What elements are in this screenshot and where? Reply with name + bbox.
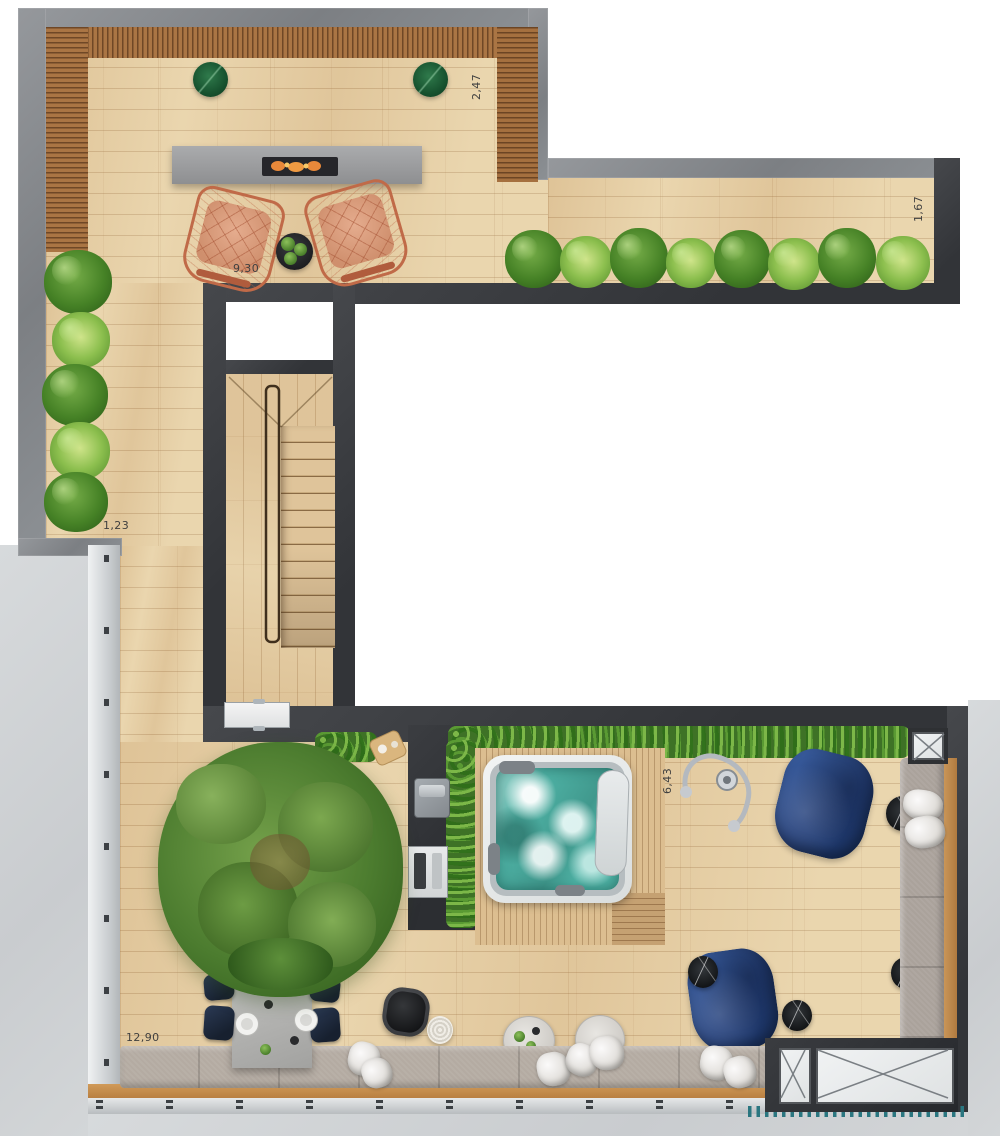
wood-slat-bench-left bbox=[46, 27, 88, 252]
white-basket bbox=[427, 1016, 453, 1044]
candle bbox=[290, 1036, 299, 1045]
exterior-ground-left bbox=[0, 545, 88, 1136]
fire-insert bbox=[262, 157, 338, 176]
wall-top bbox=[28, 8, 548, 28]
glass-balustrade-bottom bbox=[88, 1098, 768, 1114]
potted-plant bbox=[610, 228, 668, 288]
skylight-panel bbox=[912, 732, 944, 760]
green-marble-side-table bbox=[193, 62, 228, 97]
potted-plant bbox=[284, 252, 297, 265]
potted-plant bbox=[818, 228, 876, 288]
potted-plant bbox=[560, 236, 612, 288]
tree-canopy bbox=[228, 938, 333, 990]
balustrade-clips bbox=[96, 1100, 756, 1103]
floor-plan-canvas: 2,47 9,30 1,23 1,67 6,43 12,90 bbox=[0, 0, 1000, 1136]
black-marble-side-table bbox=[688, 956, 718, 988]
green-marble-side-table bbox=[413, 62, 448, 97]
glass-balustrade-left bbox=[88, 545, 120, 1105]
dim-upper-right-depth: 2,47 bbox=[470, 58, 483, 100]
skylight-panel-small bbox=[779, 1048, 811, 1104]
jacuzzi-headrest bbox=[488, 843, 500, 875]
dim-upper-terrace-width: 9,30 bbox=[233, 262, 259, 275]
jacuzzi-lounger bbox=[594, 769, 630, 876]
fireplace-bench bbox=[172, 146, 422, 184]
balustrade-clips bbox=[96, 1106, 756, 1109]
skylight-top-right bbox=[908, 728, 948, 764]
jacuzzi-headrest bbox=[555, 885, 585, 896]
jacuzzi bbox=[483, 755, 632, 903]
wall-stairs-left bbox=[203, 283, 226, 723]
dim-lower-terrace-depth: 6,43 bbox=[661, 752, 674, 794]
terrace-tree bbox=[158, 742, 403, 997]
potted-plant bbox=[768, 238, 820, 290]
table-plant bbox=[260, 1044, 271, 1055]
wood-slat-bench-corner bbox=[497, 27, 538, 182]
potted-plant bbox=[44, 250, 112, 314]
wood-slat-bench-top bbox=[57, 27, 497, 58]
potted-plant bbox=[514, 1031, 525, 1042]
jacuzzi-headrest bbox=[499, 761, 535, 774]
stairwell-sill bbox=[226, 360, 333, 374]
potted-plant bbox=[505, 230, 563, 288]
wall-stairs-right bbox=[333, 283, 355, 723]
wall-left bbox=[18, 8, 46, 548]
potted-plant bbox=[876, 236, 930, 290]
exterior-ground-right bbox=[968, 700, 1000, 1136]
hedge-left-of-jacuzzi bbox=[446, 740, 478, 928]
tree-canopy bbox=[176, 764, 266, 844]
decor-item bbox=[532, 1027, 540, 1035]
dim-lower-terrace-width: 12,90 bbox=[126, 1031, 160, 1044]
potted-plant bbox=[52, 312, 110, 368]
potted-plant bbox=[666, 238, 716, 288]
chair-cushion bbox=[316, 191, 397, 271]
dining-chair bbox=[203, 1005, 235, 1041]
tree-branch-gap bbox=[250, 834, 310, 890]
door-handle bbox=[253, 726, 265, 731]
potted-plant bbox=[281, 237, 295, 251]
bbq-grill bbox=[414, 778, 450, 818]
stairwell-void bbox=[226, 302, 333, 362]
plant-side-table bbox=[276, 233, 313, 270]
place-setting bbox=[294, 1008, 318, 1032]
door-handle bbox=[253, 699, 265, 704]
wall-wing-top bbox=[548, 158, 958, 178]
potted-plant bbox=[42, 364, 108, 426]
built-in-bench-bottom bbox=[120, 1046, 768, 1088]
potted-plant bbox=[44, 472, 108, 532]
candle bbox=[264, 1000, 273, 1009]
sofa-wood-back bbox=[942, 758, 957, 1044]
jacuzzi-deck-dark-corner bbox=[612, 893, 665, 945]
dim-left-passage-width: 1,23 bbox=[103, 519, 129, 532]
terrace-door bbox=[224, 702, 290, 728]
black-marble-side-table bbox=[782, 1000, 812, 1031]
left-passage-floor-lower bbox=[120, 546, 205, 744]
balustrade-clips bbox=[104, 555, 109, 1095]
skylight-panel-large bbox=[816, 1048, 954, 1104]
potted-plant bbox=[714, 230, 770, 288]
outdoor-sink-cabinet bbox=[408, 846, 448, 898]
stair-treads bbox=[281, 426, 335, 648]
place-setting bbox=[235, 1012, 259, 1036]
dim-wing-depth: 1,67 bbox=[912, 180, 925, 222]
